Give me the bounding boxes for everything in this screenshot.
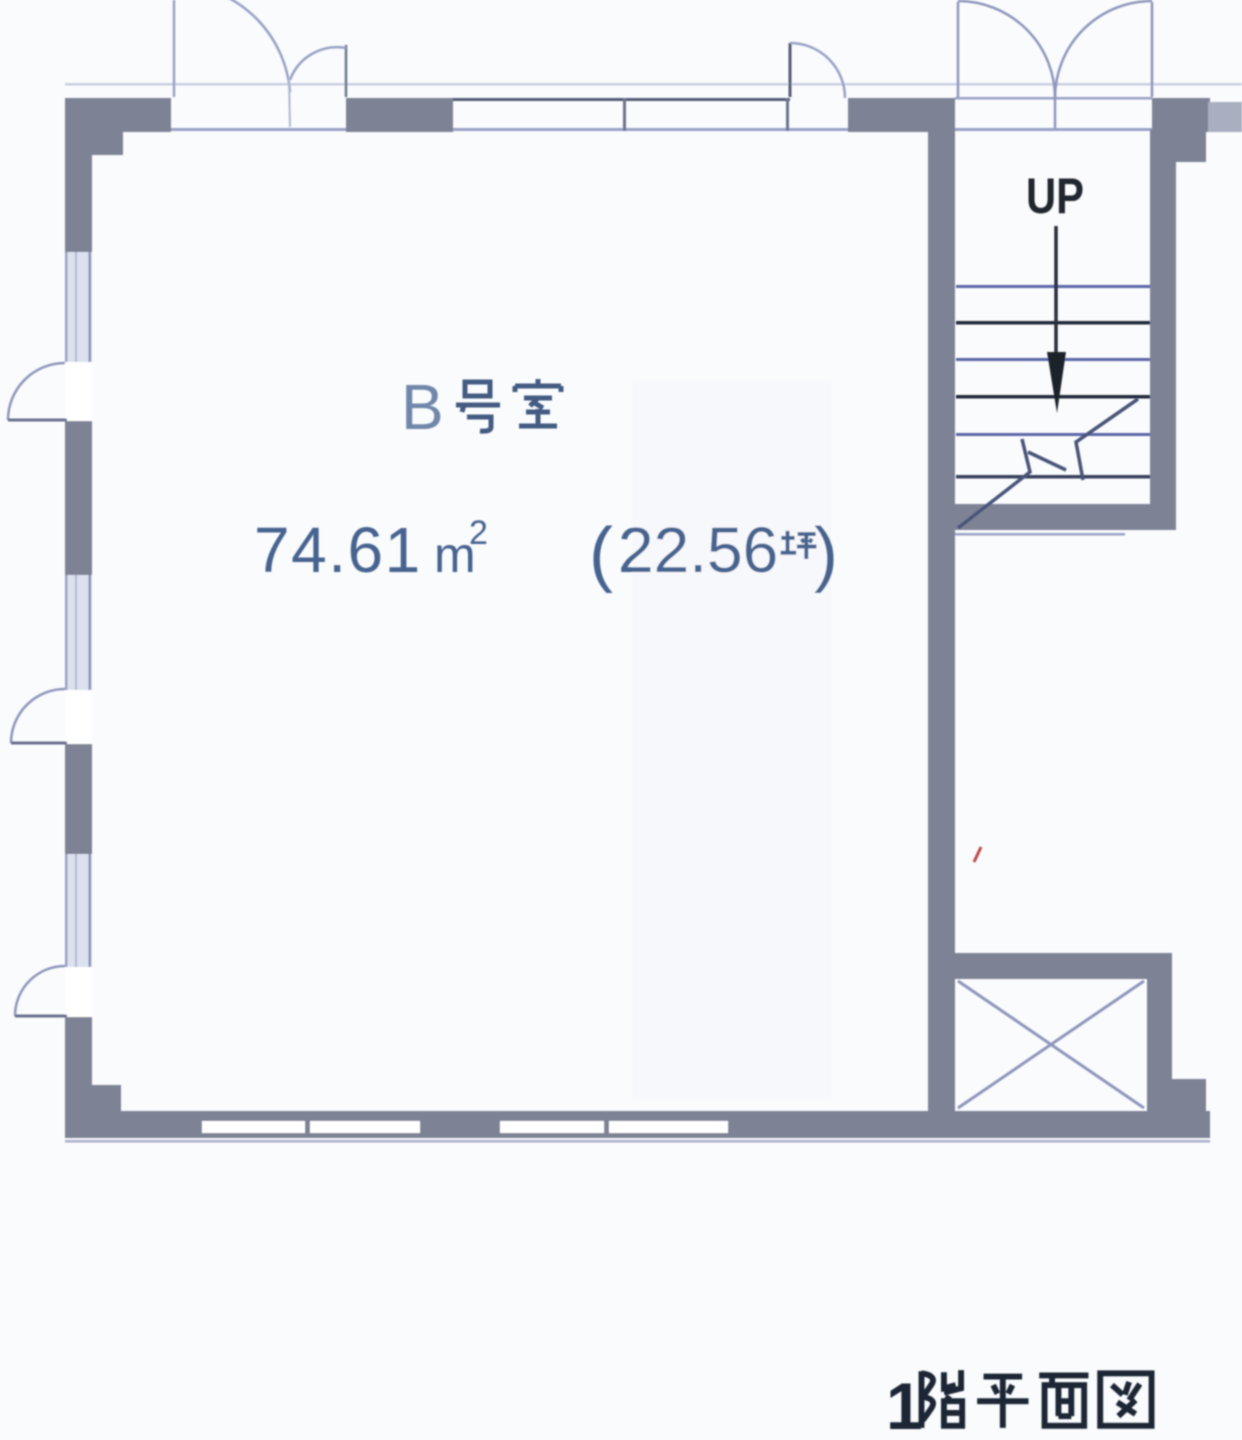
- svg-text:): ): [814, 514, 838, 594]
- svg-text:UP: UP: [1026, 168, 1084, 224]
- svg-text:22.56: 22.56: [618, 514, 778, 586]
- svg-text:74.61: 74.61: [254, 514, 422, 586]
- svg-text:1: 1: [886, 1369, 923, 1440]
- svg-text:2: 2: [469, 514, 488, 552]
- svg-text:(: (: [589, 514, 613, 594]
- svg-text:B: B: [401, 371, 444, 443]
